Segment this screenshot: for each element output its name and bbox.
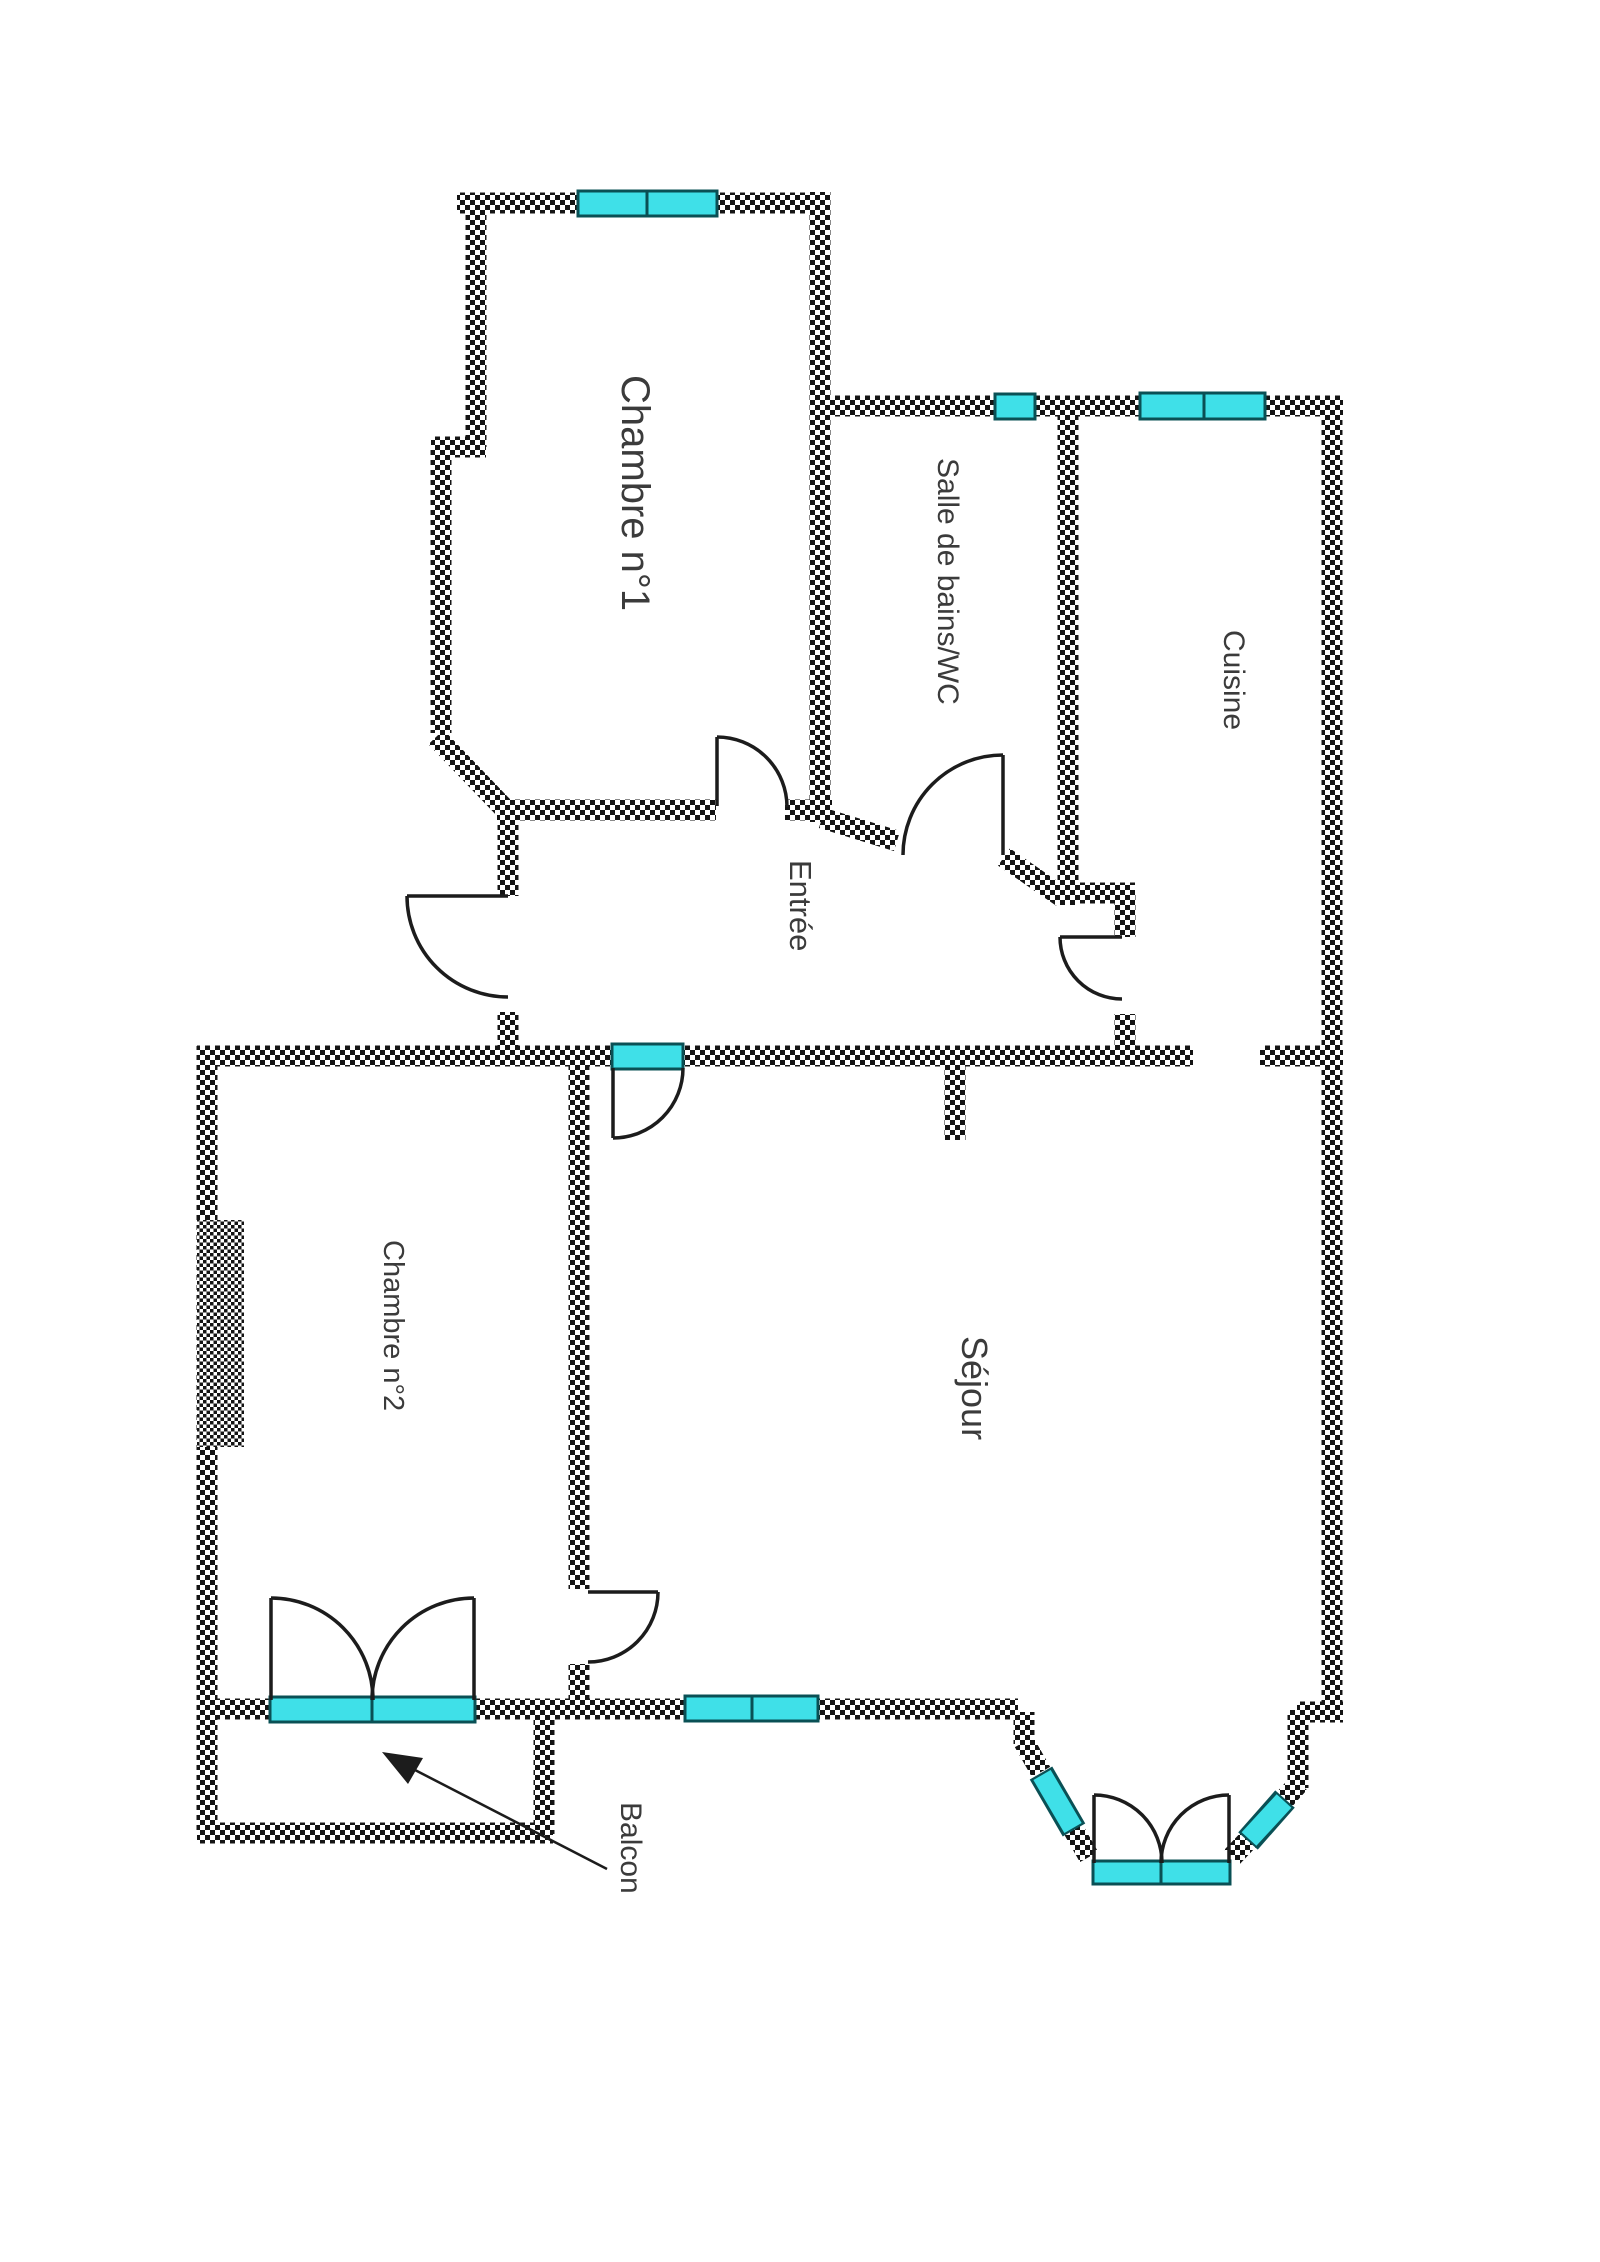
floor-plan: Chambre n°1 Salle de bains/WC Cuisine En… [0, 0, 1600, 2262]
wall-segment-diagonal [1232, 1838, 1250, 1857]
room-label-salle-de-bains: Salle de bains/WC [931, 458, 964, 705]
door-arc-cuisine [1060, 937, 1122, 999]
room-label-chambre2: Chambre n°2 [377, 1240, 409, 1411]
balcon-annotation [382, 1752, 607, 1869]
wall-segment-diagonal [1024, 1742, 1041, 1772]
bay-door-arc-left [1094, 1795, 1162, 1863]
window-salle-de-bains [995, 394, 1035, 419]
room-label-sejour: Séjour [954, 1336, 995, 1440]
door-arc-salle-de-bains [903, 755, 1003, 855]
room-label-chambre1: Chambre n°1 [613, 375, 657, 611]
room-label-balcon: Balcon [614, 1802, 647, 1894]
floor-plan-page: Chambre n°1 Salle de bains/WC Cuisine En… [0, 0, 1600, 2262]
wall-segment-diagonal [1004, 857, 1062, 897]
french-door-arc-left [271, 1598, 373, 1700]
bay-window-left-glass [1042, 1775, 1073, 1828]
door-arc-chambre2 [588, 1592, 658, 1662]
window-entree-sejour [612, 1044, 683, 1069]
wall-segment-diagonal [822, 818, 897, 841]
door-arc-entree [407, 896, 508, 997]
french-door-arc-right [372, 1598, 474, 1700]
room-label-entree: Entrée [783, 860, 818, 951]
doors [271, 737, 1229, 1863]
door-arc-chambre1 [717, 737, 787, 807]
door-arc-sejour [613, 1068, 683, 1138]
balcon-leader-line [415, 1770, 607, 1869]
walls [197, 192, 1343, 1857]
wall-segment-diagonal [436, 737, 503, 807]
balcon-arrowhead [382, 1752, 423, 1784]
room-label-cuisine: Cuisine [1217, 630, 1250, 730]
bay-window-right-glass [1249, 1801, 1284, 1839]
wall-segment-diagonal [1072, 1827, 1089, 1857]
chimney-block [197, 1220, 244, 1447]
bay-door-arc-right [1161, 1795, 1229, 1863]
